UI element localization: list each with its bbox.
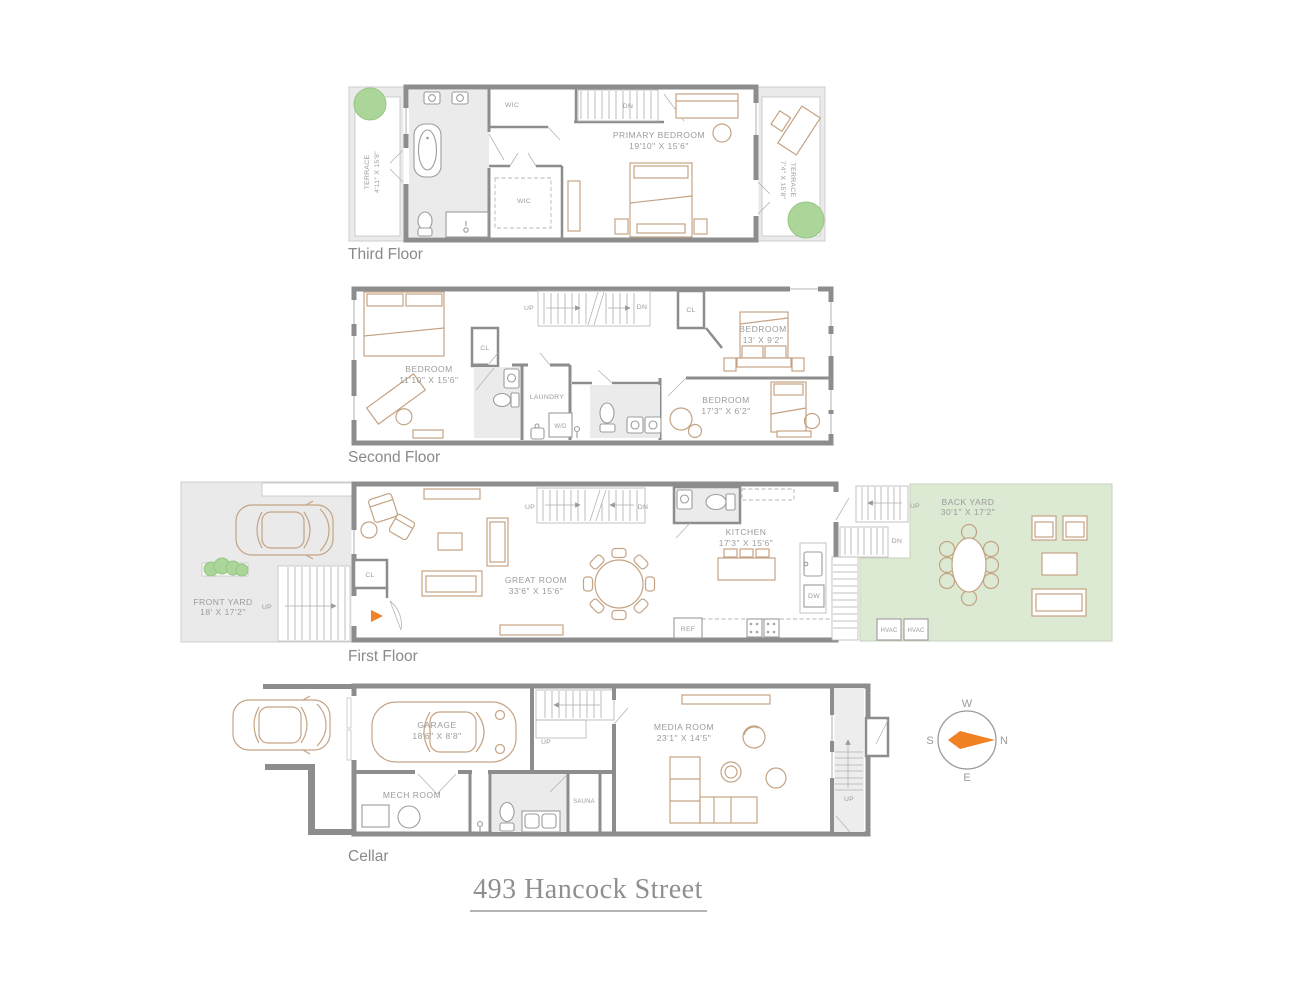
laundry-label: LAUNDRY bbox=[530, 394, 565, 401]
wic-top-label: WIC bbox=[505, 102, 519, 109]
first-floor-plan: UP FRONT YARD 18' X 17'2" CL GREAT ROOM … bbox=[181, 482, 1112, 665]
compass-west: W bbox=[962, 698, 973, 710]
garage-dims: 18'6" X 8'8" bbox=[412, 731, 461, 741]
shelf bbox=[413, 430, 443, 438]
bedroom-top-right-dims: 13' X 9'2" bbox=[743, 335, 784, 345]
nightstand bbox=[615, 219, 628, 234]
great-room-label: GREAT ROOM bbox=[505, 575, 567, 585]
toilet bbox=[600, 403, 614, 423]
rear-stairs: UP bbox=[830, 686, 889, 834]
stairs-up-label: UP bbox=[541, 739, 551, 746]
nightstand bbox=[694, 219, 707, 234]
cellar-label: Cellar bbox=[348, 848, 388, 865]
rear-stairs-dn-label: DN bbox=[892, 538, 902, 545]
compass-east: E bbox=[963, 772, 970, 784]
media-room-label: MEDIA ROOM bbox=[654, 722, 714, 732]
north-arrow-icon bbox=[948, 731, 995, 749]
compass-south: S bbox=[926, 735, 933, 747]
stairs-up-label: UP bbox=[524, 305, 534, 312]
closet-label: CL bbox=[365, 572, 374, 579]
lounge-chair bbox=[1063, 516, 1087, 540]
media-room-dims: 23'1" X 14'5" bbox=[657, 733, 712, 743]
third-floor-label: Third Floor bbox=[348, 246, 423, 263]
hvac-right-label: HVAC bbox=[907, 628, 924, 634]
console bbox=[424, 489, 480, 499]
stairs-up-label: UP bbox=[525, 504, 535, 511]
rear-stairs-up-label: UP bbox=[910, 503, 920, 510]
nightstand bbox=[724, 358, 736, 371]
great-room-dims: 33'6" X 15'6" bbox=[509, 586, 564, 596]
hvac-left-label: HVAC bbox=[880, 628, 897, 634]
dresser bbox=[676, 94, 738, 118]
bulkhead bbox=[866, 718, 888, 756]
compass-north: N bbox=[1000, 735, 1008, 747]
svg-text:TERRACE: TERRACE bbox=[789, 163, 796, 198]
kitchen-dims: 17'3" X 15'6" bbox=[719, 538, 774, 548]
sink bbox=[645, 417, 661, 433]
credenza bbox=[500, 625, 563, 635]
shelf bbox=[777, 431, 811, 437]
page-title: 493 Hancock Street bbox=[473, 874, 703, 905]
washer-dryer-label: W/D bbox=[554, 424, 567, 430]
stool bbox=[724, 549, 737, 557]
range bbox=[747, 619, 762, 637]
console bbox=[682, 695, 770, 704]
kitchen-label: KITCHEN bbox=[726, 527, 767, 537]
bathroom bbox=[474, 367, 520, 438]
bathtub bbox=[414, 124, 441, 177]
stairs-dn-label: DN bbox=[623, 103, 633, 110]
car bbox=[233, 696, 330, 754]
cellar-plan: GARAGE 18'6" X 8'8" UP MEDIA ROOM 23'1" … bbox=[233, 684, 888, 865]
back-yard-label: BACK YARD bbox=[942, 497, 995, 507]
outdoor-sofa bbox=[1032, 589, 1086, 616]
sink bbox=[424, 92, 440, 104]
garage-label: GARAGE bbox=[417, 720, 456, 730]
svg-text:4'11" X 15'8": 4'11" X 15'8" bbox=[374, 151, 381, 193]
stool bbox=[740, 549, 753, 557]
sink bbox=[677, 490, 692, 509]
kitchen-island bbox=[718, 549, 775, 580]
sink bbox=[627, 417, 643, 433]
dishwasher-label: DW bbox=[808, 593, 820, 600]
back-yard-dims: 30'1" X 17'2" bbox=[941, 507, 996, 517]
sofa bbox=[422, 571, 482, 596]
closet-right-label: CL bbox=[686, 307, 695, 314]
toilet bbox=[418, 212, 432, 236]
floor-plan-svg: TERRACE 4'11" X 15'8" TERRACE 7'4" X 15'… bbox=[0, 0, 1294, 1000]
wic-center-label: WIC bbox=[517, 198, 531, 205]
mech-room-label: MECH ROOM bbox=[383, 790, 441, 800]
sauna-label: SAUNA bbox=[573, 799, 595, 805]
closet-left-label: CL bbox=[480, 345, 489, 352]
toilet bbox=[511, 393, 519, 407]
range bbox=[764, 619, 779, 637]
front-yard-label: FRONT YARD bbox=[193, 597, 252, 607]
front-yard-dims: 18' X 17'2" bbox=[200, 607, 246, 617]
tree-icon bbox=[788, 202, 824, 238]
equipment bbox=[362, 805, 389, 827]
bed bbox=[771, 382, 806, 432]
bedroom-bottom-right-dims: 17'3" X 6'2" bbox=[701, 406, 750, 416]
toilet bbox=[726, 494, 735, 510]
front-steps-up-label: UP bbox=[262, 604, 272, 611]
tree-icon bbox=[354, 88, 386, 120]
bed bbox=[364, 292, 444, 356]
bedroom-left-label: BEDROOM bbox=[405, 364, 452, 374]
primary-bedroom-dims: 19'10" X 15'6" bbox=[629, 141, 689, 151]
shower bbox=[446, 212, 488, 237]
coffee-table bbox=[438, 533, 462, 550]
stairs-dn-label: DN bbox=[637, 304, 647, 311]
second-floor-label: Second Floor bbox=[348, 449, 440, 466]
refrigerator-label: REF bbox=[681, 626, 696, 633]
toilet bbox=[500, 803, 514, 822]
nightstand bbox=[792, 358, 804, 371]
stool bbox=[756, 549, 769, 557]
stairs-dn-label: DN bbox=[638, 504, 648, 511]
first-floor-label: First Floor bbox=[348, 648, 418, 665]
sink bbox=[542, 814, 556, 828]
sink bbox=[804, 552, 822, 576]
compass: W N E S bbox=[926, 698, 1008, 784]
third-floor-plan: TERRACE 4'11" X 15'8" TERRACE 7'4" X 15'… bbox=[348, 87, 825, 263]
outdoor-table bbox=[1042, 553, 1077, 575]
lounge-chair bbox=[1032, 516, 1056, 540]
floor-plan-sheet: TERRACE 4'11" X 15'8" TERRACE 7'4" X 15'… bbox=[0, 0, 1294, 1000]
sheet-title: 493 Hancock Street bbox=[470, 874, 707, 911]
primary-bedroom-label: PRIMARY BEDROOM bbox=[613, 130, 705, 140]
sink bbox=[531, 428, 544, 439]
svg-text:TERRACE: TERRACE bbox=[364, 155, 371, 190]
sofa bbox=[487, 518, 508, 566]
sink bbox=[504, 369, 519, 388]
bedroom-bottom-right-label: BEDROOM bbox=[702, 395, 749, 405]
bench bbox=[568, 181, 580, 231]
bedroom-top-right-label: BEDROOM bbox=[739, 324, 786, 334]
unit-outline bbox=[354, 686, 868, 834]
sink bbox=[525, 814, 539, 828]
rear-stairs-up-label: UP bbox=[844, 796, 854, 803]
sink bbox=[452, 92, 468, 104]
second-floor-plan: BEDROOM 11'10" X 15'6" CL CL UP DN BEDRO… bbox=[348, 287, 834, 467]
bedroom-left-dims: 11'10" X 15'6" bbox=[399, 375, 458, 385]
svg-text:7'4" X 15'8": 7'4" X 15'8" bbox=[779, 161, 786, 200]
